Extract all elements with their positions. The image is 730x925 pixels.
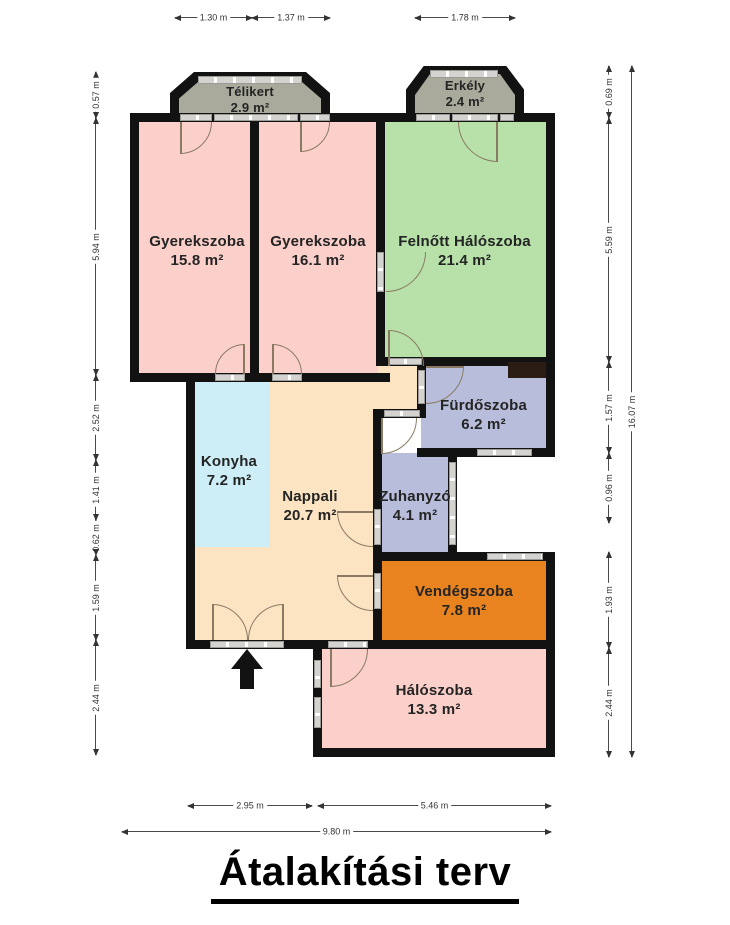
door-threshold [384, 410, 420, 417]
dimension-total-width: 9.80 m [122, 831, 551, 832]
room-name: Nappali [240, 487, 380, 506]
door-threshold [210, 641, 284, 648]
room-label-konyha: Konyha 7.2 m² [186, 452, 272, 490]
room-name: Télikert [178, 84, 322, 100]
plan-title-text: Átalakítási terv [211, 850, 520, 904]
room-area: 4.1 m² [377, 506, 453, 525]
room-name: Fürdőszoba [421, 396, 546, 415]
wall [546, 113, 555, 457]
room-label-telikert: Télikert 2.9 m² [178, 84, 322, 116]
door-arc [272, 344, 302, 374]
window [314, 660, 321, 688]
entry-door-arc-right [248, 604, 284, 640]
wall [186, 373, 195, 649]
door-threshold [374, 573, 381, 609]
door-arc [337, 575, 373, 611]
room-area: 6.2 m² [421, 415, 546, 434]
room-area: 2.9 m² [178, 100, 322, 116]
window [416, 114, 450, 121]
room-name: Gyerekszoba [255, 232, 381, 251]
room-label-haloszoba: Hálószoba 13.3 m² [321, 681, 547, 719]
entrance-arrow-icon [231, 649, 263, 669]
dimension: 0.69 m [608, 66, 609, 118]
dimension-total-height: 16.07 m [631, 66, 632, 757]
window [477, 449, 532, 456]
dimension: 0.96 m [608, 453, 609, 523]
window [487, 553, 543, 560]
door-leaf [212, 604, 214, 640]
wall [130, 113, 139, 382]
door-threshold [272, 374, 302, 381]
room-label-erkely: Erkély 2.4 m² [415, 78, 515, 110]
door-arc [458, 122, 498, 162]
door-leaf [426, 366, 464, 368]
room-area: 2.4 m² [415, 94, 515, 110]
room-area: 21.4 m² [383, 251, 546, 270]
door-leaf [272, 344, 274, 374]
dimension: 0.62 m [95, 520, 96, 555]
entrance-arrow-shaft [240, 668, 254, 689]
wall [130, 373, 390, 382]
dimension: 2.95 m [188, 805, 312, 806]
window [198, 76, 302, 84]
door-leaf [337, 575, 373, 577]
window [314, 697, 321, 728]
floor-plan: Télikert 2.9 m² Erkély 2.4 m² Gyerekszob… [0, 0, 730, 925]
entry-door-arc-left [212, 604, 248, 640]
dimension: 1.37 m [252, 17, 330, 18]
dimension: 5.94 m [95, 118, 96, 375]
door-leaf [388, 330, 390, 366]
dimension: 1.41 m [95, 460, 96, 520]
dimension: 1.30 m [175, 17, 252, 18]
room-label-nappali: Nappali 20.7 m² [240, 487, 380, 525]
door-leaf [300, 122, 302, 152]
door-arc [388, 330, 424, 366]
door-leaf [381, 418, 383, 454]
room-name: Vendégszoba [381, 582, 547, 601]
dimension: 2.44 m [95, 640, 96, 755]
room-name: Gyerekszoba [139, 232, 255, 251]
room-area: 13.3 m² [321, 700, 547, 719]
door-leaf [243, 344, 245, 374]
dimension: 1.59 m [95, 555, 96, 640]
door-arc [381, 418, 417, 454]
door-threshold [328, 641, 368, 648]
window [430, 70, 498, 78]
door-leaf [496, 122, 498, 162]
dimension: 5.59 m [608, 118, 609, 362]
room-name: Zuhanyzó [377, 487, 453, 506]
room-label-zuhanyzo: Zuhanyzó 4.1 m² [377, 487, 453, 525]
dimension: 2.52 m [95, 375, 96, 460]
door-arc [300, 122, 330, 152]
dimension: 2.44 m [608, 648, 609, 757]
wall [313, 748, 555, 757]
wall [546, 552, 555, 757]
dimension: 0.57 m [95, 72, 96, 118]
window [500, 114, 514, 121]
door-arc [180, 122, 212, 154]
room-area: 16.1 m² [255, 251, 381, 270]
room-label-gyerekszoba-2: Gyerekszoba 16.1 m² [255, 232, 381, 270]
room-label-gyerekszoba-1: Gyerekszoba 15.8 m² [139, 232, 255, 270]
dimension: 1.57 m [608, 362, 609, 453]
dimension: 5.46 m [318, 805, 551, 806]
room-label-vendegszoba: Vendégszoba 7.8 m² [381, 582, 547, 620]
room-name: Erkély [415, 78, 515, 94]
dimension: 1.93 m [608, 552, 609, 648]
door-threshold [452, 114, 498, 121]
dimension: 1.78 m [415, 17, 515, 18]
room-name: Konyha [186, 452, 272, 471]
room-area: 7.8 m² [381, 601, 547, 620]
door-arc [215, 344, 245, 374]
plan-title: Átalakítási terv [0, 850, 730, 904]
door-leaf [282, 604, 284, 640]
room-name: Felnőtt Hálószoba [383, 232, 546, 251]
door-leaf [180, 122, 182, 154]
room-label-felnott-haloszoba: Felnőtt Hálószoba 21.4 m² [383, 232, 546, 270]
duct-shaft [508, 362, 546, 378]
room-area: 15.8 m² [139, 251, 255, 270]
room-label-furdoszoba: Fürdőszoba 6.2 m² [421, 396, 546, 434]
door-threshold [215, 374, 245, 381]
room-area: 20.7 m² [240, 506, 380, 525]
room-name: Hálószoba [321, 681, 547, 700]
